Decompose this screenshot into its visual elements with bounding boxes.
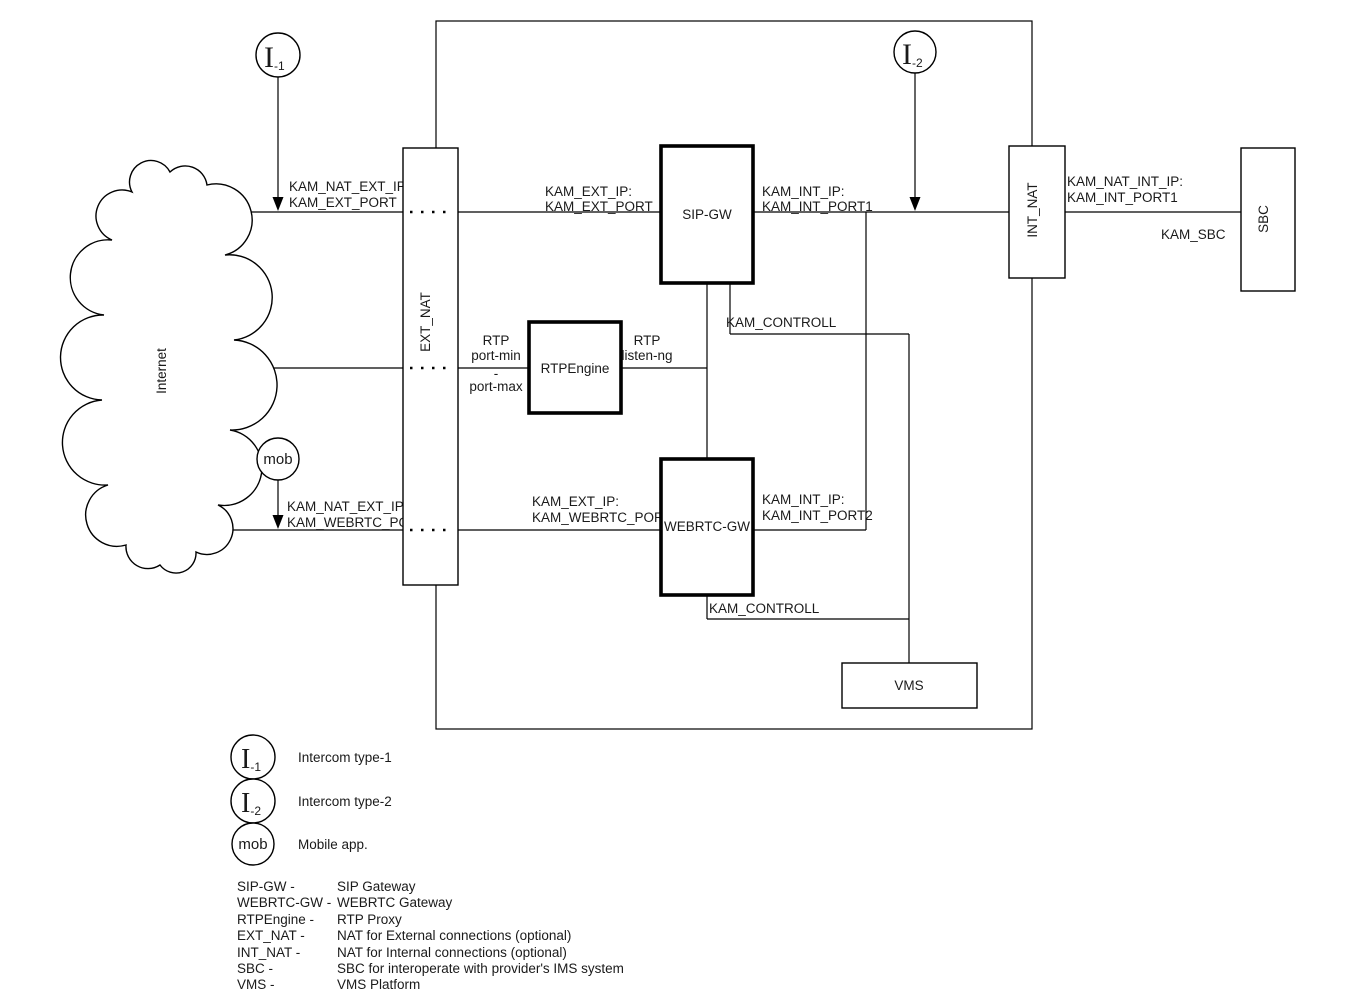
legend-desc-1: WEBRTC Gateway xyxy=(337,895,453,910)
legend-term-1: WEBRTC-GW - xyxy=(237,895,331,910)
legend-desc-3: NAT for External connections (optional) xyxy=(337,928,571,943)
legend-term-6: VMS - xyxy=(237,977,275,992)
sip-gw-label: SIP-GW xyxy=(682,207,732,222)
legend-term-2: RTPEngine - xyxy=(237,912,314,927)
label-extnat-webrtcgw-1: KAM_EXT_IP: xyxy=(532,494,619,509)
intercom2-arrowhead xyxy=(910,197,921,211)
label-webrtcgw-link-1: KAM_INT_IP: xyxy=(762,492,845,507)
legend-desc-4: NAT for Internal connections (optional) xyxy=(337,945,567,960)
legend-desc-6: VMS Platform xyxy=(337,977,420,992)
mobile-symbol: mob xyxy=(263,451,292,468)
label-rtp-right-2: listen-ng xyxy=(621,348,672,363)
mobile-arrowhead xyxy=(273,515,284,529)
ext-nat-box xyxy=(403,148,458,585)
legend-intercom2-label: Intercom type-2 xyxy=(298,794,392,809)
legend-actors: I-1 Intercom type-1 I-2 Intercom type-2 … xyxy=(231,735,392,865)
label-extnat-webrtcgw-2: KAM_WEBRTC_PORT xyxy=(532,510,672,525)
label-webrtcgw-link-2: KAM_INT_PORT2 xyxy=(762,508,873,523)
legend-term-5: SBC - xyxy=(237,961,273,976)
label-rtp-left-2: port-min xyxy=(471,348,521,363)
legend-term-3: EXT_NAT - xyxy=(237,928,305,943)
legend-desc-2: RTP Proxy xyxy=(337,912,402,927)
label-rtp-left-1: RTP xyxy=(483,333,510,348)
legend-mobile-label: Mobile app. xyxy=(298,837,368,852)
legend-intercom1-label: Intercom type-1 xyxy=(298,750,392,765)
label-rtp-left-4: port-max xyxy=(469,379,523,394)
label-kam-sbc: KAM_SBC xyxy=(1161,227,1226,242)
intercom2-actor: I-2 xyxy=(894,31,936,211)
label-intercom1-nat-1: KAM_NAT_EXT_IP: xyxy=(289,179,410,194)
internet-label: Internet xyxy=(154,348,169,394)
label-extnat-sipgw-1: KAM_EXT_IP: xyxy=(545,184,632,199)
label-extnat-sipgw-2: KAM_EXT_PORT xyxy=(545,199,653,214)
label-rtp-right-1: RTP xyxy=(634,333,661,348)
label-intnat-sbc-2: KAM_INT_PORT1 xyxy=(1067,190,1178,205)
label-sipgw-intnat-2: KAM_INT_PORT1 xyxy=(762,199,873,214)
int-nat-label: INT_NAT xyxy=(1025,182,1040,237)
architecture-diagram: KAM_NAT_EXT_IP: KAM_EXT_PORT KAM_NAT_EXT… xyxy=(0,0,1359,1008)
label-intnat-sbc-1: KAM_NAT_INT_IP: xyxy=(1067,174,1183,189)
rtpengine-label: RTPEngine xyxy=(541,361,610,376)
webrtc-gw-label: WEBRTC-GW xyxy=(664,519,750,534)
label-sipgw-intnat-1: KAM_INT_IP: xyxy=(762,184,845,199)
ext-nat-label: EXT_NAT xyxy=(418,292,433,352)
intercom1-arrowhead xyxy=(273,197,284,211)
sbc-label: SBC xyxy=(1256,205,1271,233)
label-webrtcgw-controll: KAM_CONTROLL xyxy=(709,601,820,616)
outer-boundary-box xyxy=(436,21,1032,729)
legend-term-0: SIP-GW - xyxy=(237,879,295,894)
legend-mobile-symbol: mob xyxy=(238,836,267,853)
legend-term-4: INT_NAT - xyxy=(237,945,300,960)
legend-desc-5: SBC for interoperate with provider's IMS… xyxy=(337,961,624,976)
label-intercom1-nat-2: KAM_EXT_PORT xyxy=(289,195,397,210)
vms-label: VMS xyxy=(894,678,923,693)
label-mob-nat-1: KAM_NAT_EXT_IP: xyxy=(287,499,408,514)
label-sipgw-controll: KAM_CONTROLL xyxy=(726,315,837,330)
legend-desc-0: SIP Gateway xyxy=(337,879,416,894)
legend-terms: SIP-GW - SIP Gateway WEBRTC-GW - WEBRTC … xyxy=(237,879,624,992)
